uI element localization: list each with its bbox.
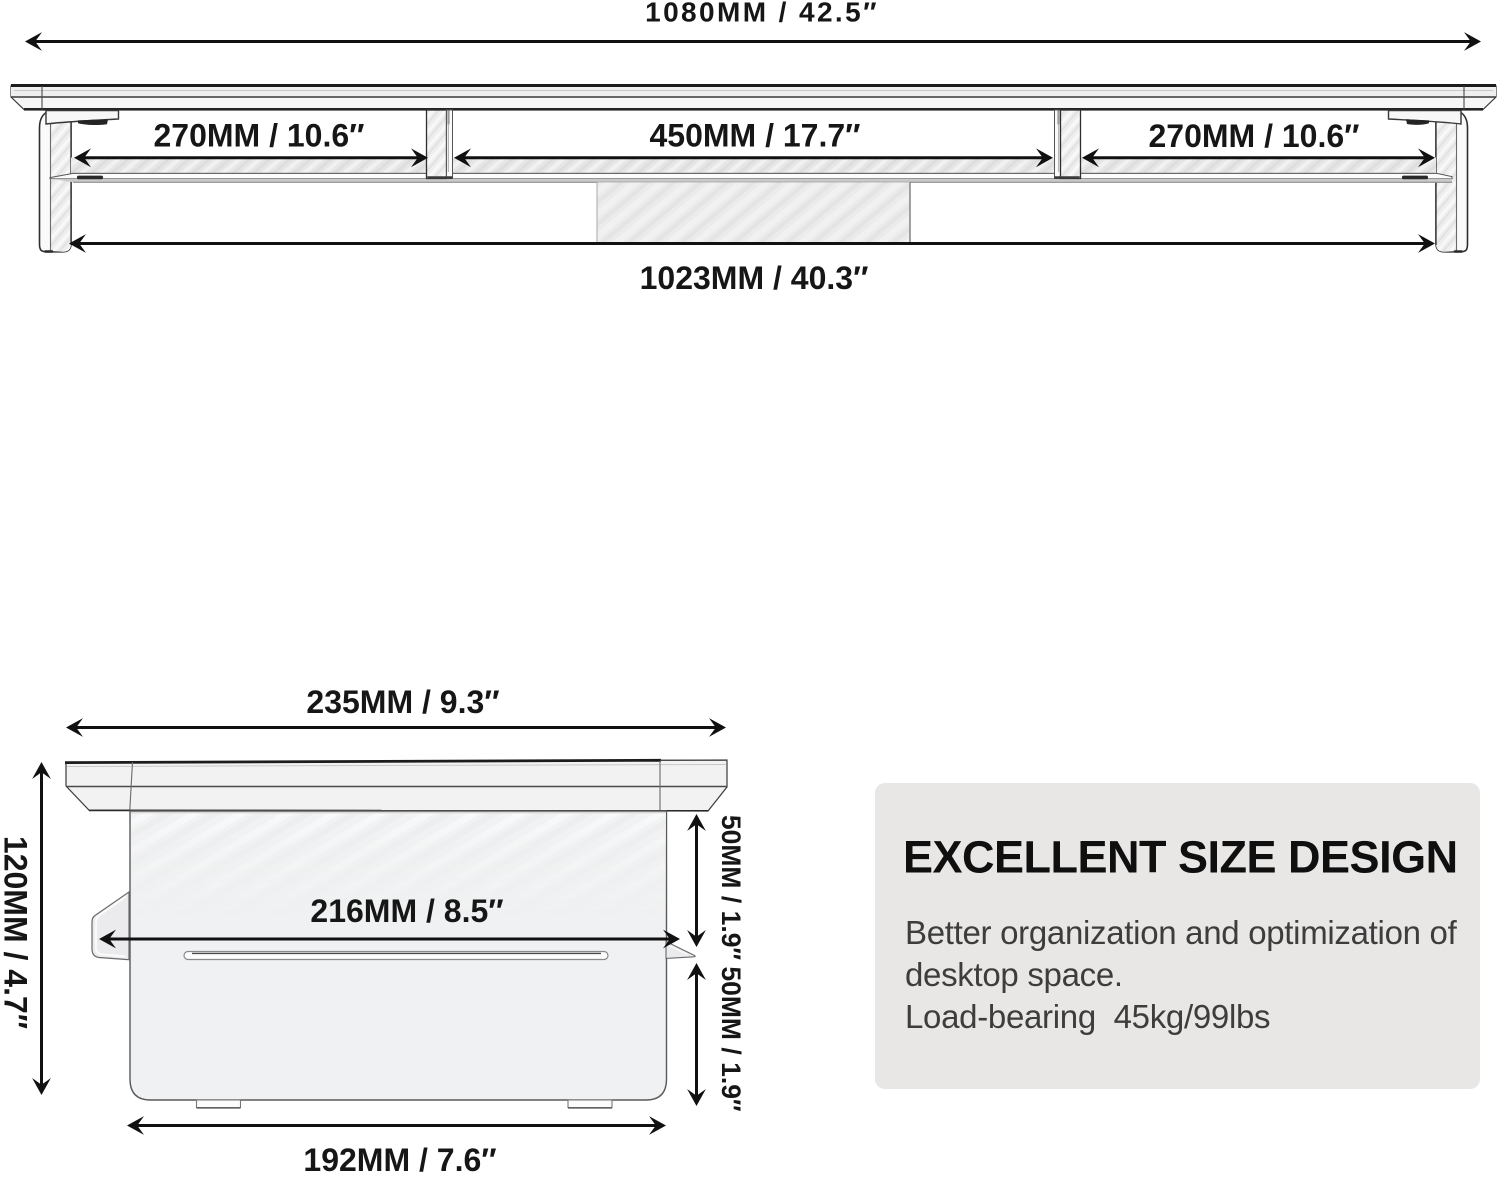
svg-text:216MM / 8.5″: 216MM / 8.5″ <box>310 893 503 929</box>
svg-text:1080MM / 42.5″: 1080MM / 42.5″ <box>645 0 879 28</box>
svg-text:50MM / 1.9″: 50MM / 1.9″ <box>716 966 746 1112</box>
svg-text:450MM / 17.7″: 450MM / 17.7″ <box>650 118 861 154</box>
svg-text:1023MM / 40.3″: 1023MM / 40.3″ <box>640 260 869 296</box>
svg-text:desktop space.: desktop space. <box>905 956 1123 993</box>
svg-text:120MM / 4.7″: 120MM / 4.7″ <box>0 836 34 1029</box>
svg-text:192MM / 7.6″: 192MM / 7.6″ <box>303 1142 496 1177</box>
svg-text:EXCELLENT SIZE DESIGN: EXCELLENT SIZE DESIGN <box>903 832 1458 883</box>
svg-text:270MM / 10.6″: 270MM / 10.6″ <box>1149 118 1360 154</box>
svg-text:Load-bearing 45kg/99lbs: Load-bearing 45kg/99lbs <box>905 998 1270 1035</box>
svg-text:235MM / 9.3″: 235MM / 9.3″ <box>306 684 499 720</box>
svg-text:50MM / 1.9″: 50MM / 1.9″ <box>716 815 746 961</box>
svg-text:270MM / 10.6″: 270MM / 10.6″ <box>154 118 365 154</box>
svg-text:Better organization and optimi: Better organization and optimization of <box>905 914 1458 951</box>
